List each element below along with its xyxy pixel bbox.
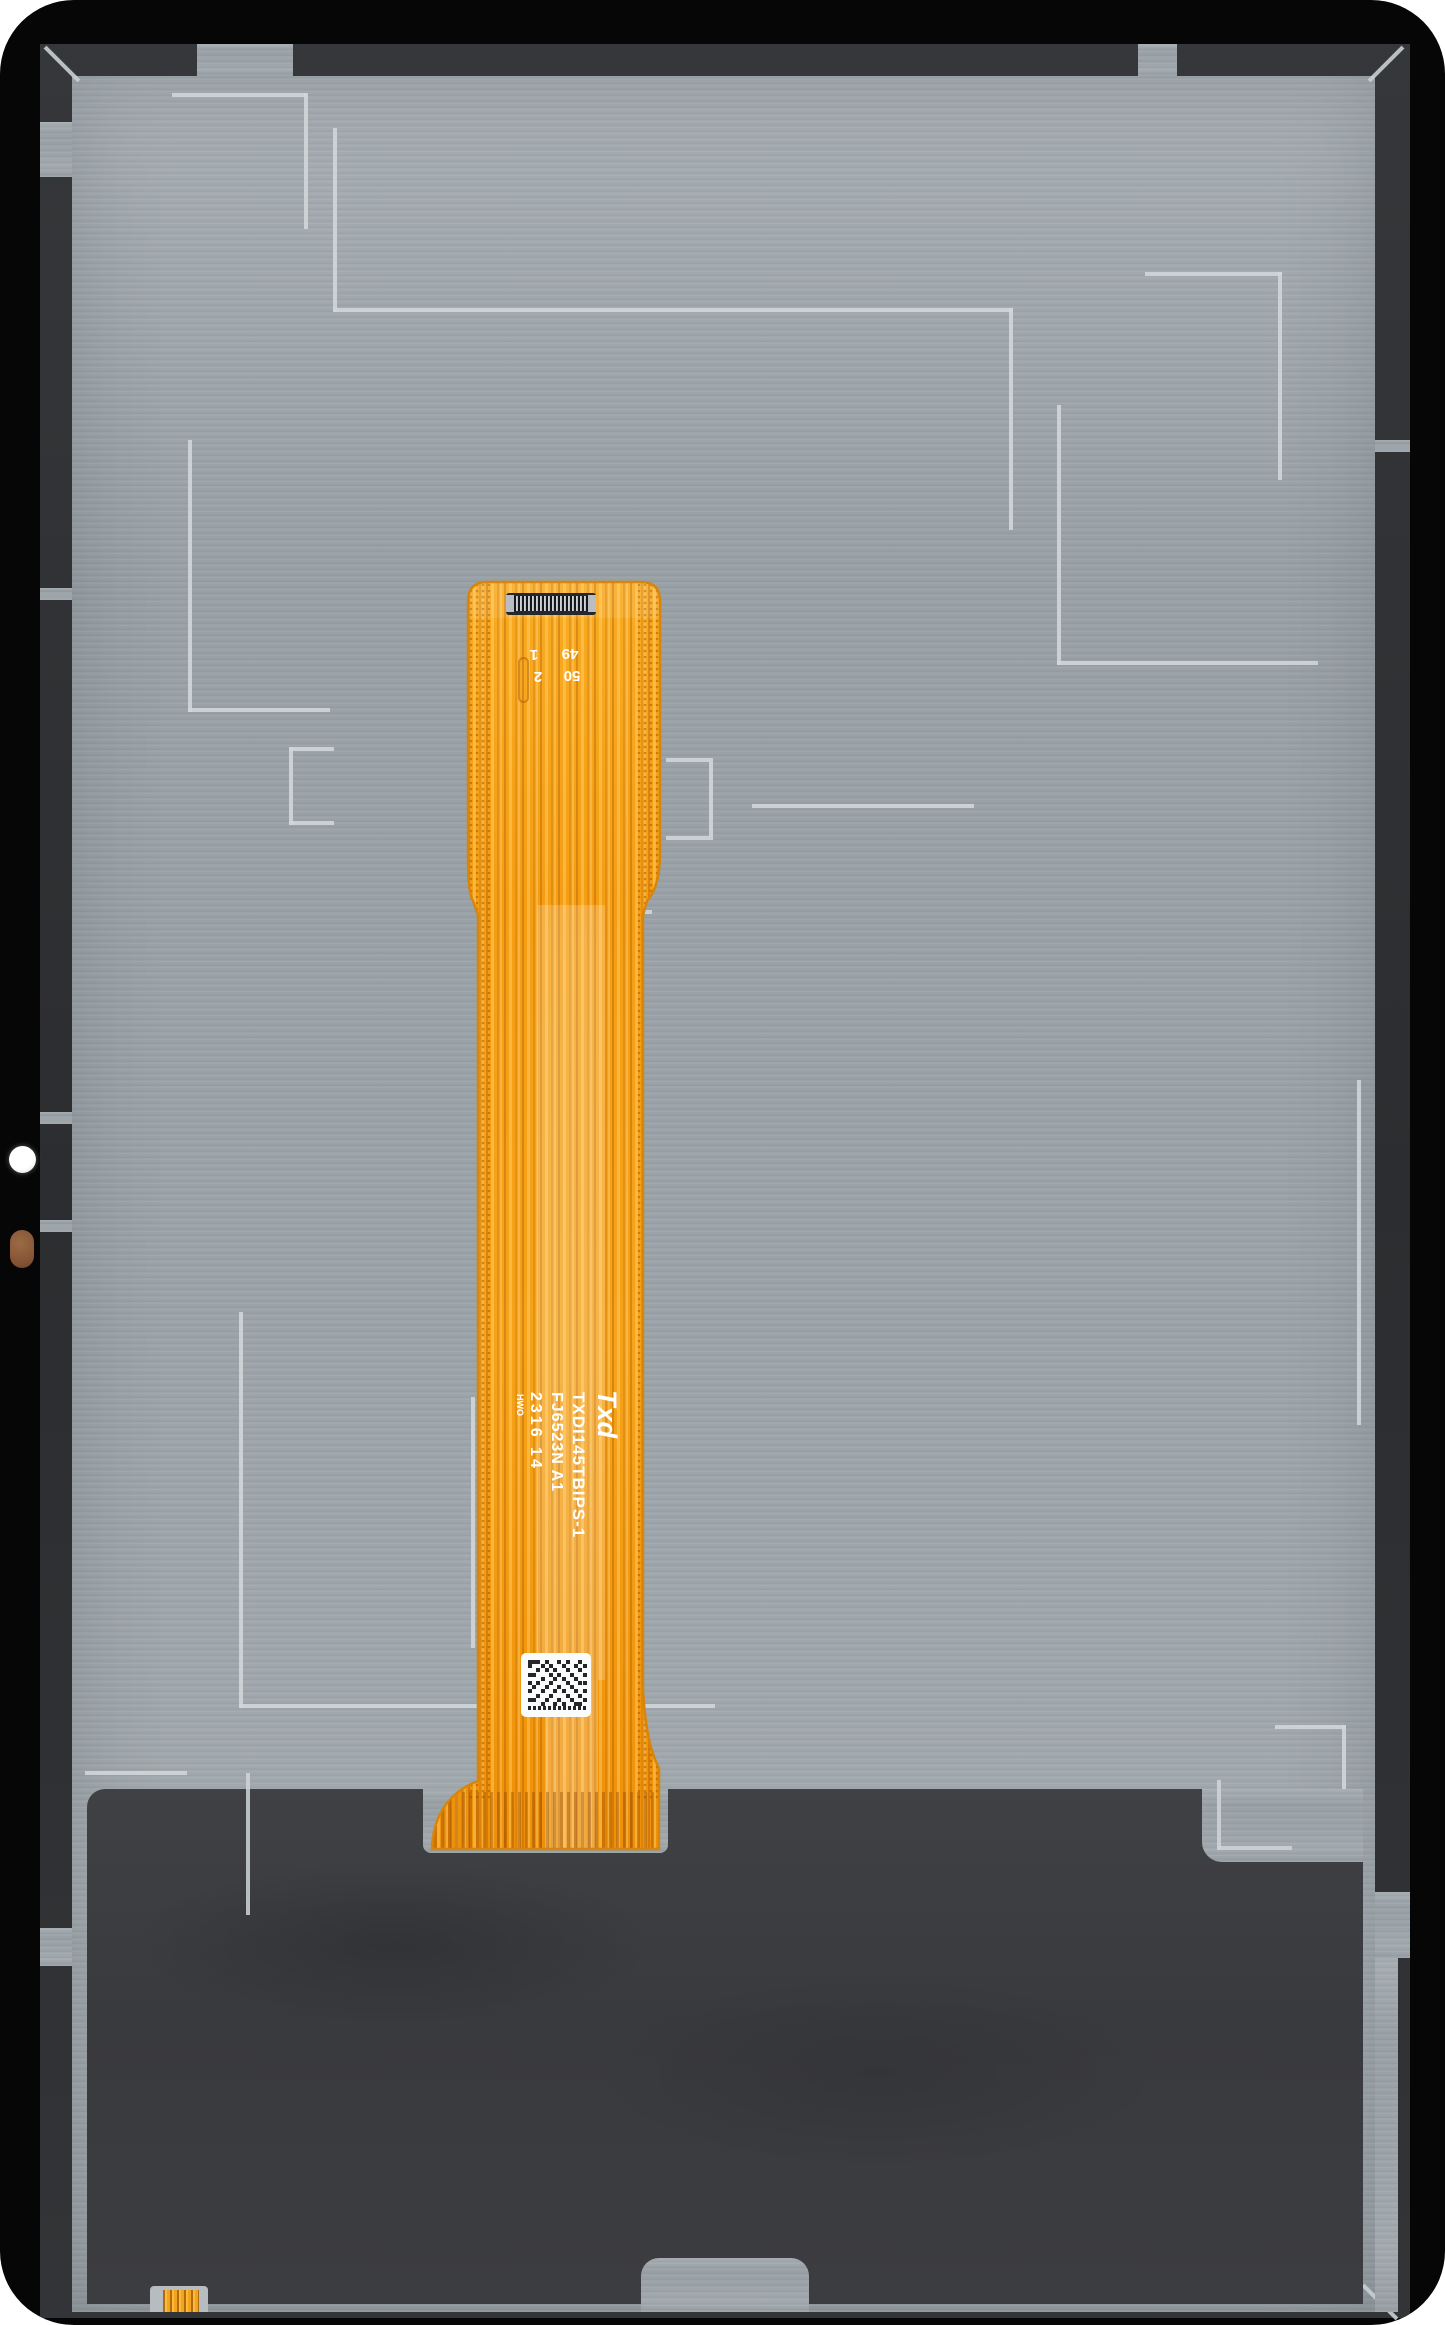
antenna-line — [1342, 1725, 1346, 1796]
antenna-line — [709, 758, 713, 840]
antenna-line — [289, 747, 293, 825]
antenna-line — [304, 93, 308, 229]
antenna-line — [1057, 661, 1318, 665]
bezel-gap — [40, 588, 72, 600]
antenna-line — [752, 804, 974, 808]
bezel-gap — [40, 1928, 72, 1966]
factory-mark: HWO — [515, 1394, 525, 1416]
antenna-line — [188, 440, 192, 712]
antenna-line — [239, 1312, 243, 1708]
antenna-line — [1145, 272, 1282, 276]
antenna-line — [333, 308, 1013, 312]
antenna-line — [188, 708, 330, 712]
antenna-line — [1217, 1846, 1292, 1850]
bezel-gap — [1375, 440, 1410, 452]
qr-label — [521, 1653, 591, 1717]
model-number: TXDI145TBIPS-1 — [569, 1392, 588, 1538]
pin-number: 49 — [562, 645, 579, 662]
right-edge-metal-strip — [1375, 1958, 1398, 2312]
pin-number: 50 — [564, 667, 581, 684]
shield-step-cutout — [1202, 1789, 1363, 1862]
brand-logo: Txd — [592, 1390, 622, 1439]
display-assembly: 1 2 49 50 Txd TXDI145TBIPS-1 FJ6523N A1 … — [0, 0, 1445, 2325]
antenna-line — [289, 747, 334, 751]
bottom-shield-cover — [87, 1789, 1363, 2304]
flex-connector — [506, 593, 596, 615]
bottom-antenna-tab — [641, 2258, 809, 2312]
antenna-window-tab — [1138, 44, 1177, 76]
antenna-line — [333, 128, 337, 312]
pin-number: 1 — [530, 646, 538, 663]
antenna-line — [1217, 1780, 1221, 1850]
antenna-line — [172, 93, 307, 97]
mini-flex-tail — [163, 2290, 199, 2312]
antenna-line — [1009, 308, 1013, 530]
antenna-line — [85, 1771, 187, 1775]
copper-contact-pad — [10, 1230, 34, 1268]
antenna-line — [1275, 1725, 1346, 1729]
antenna-line — [1057, 405, 1061, 665]
bezel-gap — [40, 1112, 72, 1124]
bezel-gap — [40, 1220, 72, 1232]
pin-number: 2 — [534, 668, 542, 685]
part-number: FJ6523N A1 — [548, 1392, 565, 1492]
antenna-line — [246, 1773, 250, 1915]
main-flex-cable: 1 2 49 50 Txd TXDI145TBIPS-1 FJ6523N A1 … — [420, 550, 680, 1862]
bezel-gap — [1375, 1892, 1410, 1958]
antenna-line — [1278, 272, 1282, 480]
antenna-line — [289, 821, 334, 825]
antenna-window-tab — [197, 44, 293, 76]
camera-hole — [9, 1146, 36, 1173]
bezel-gap — [40, 122, 72, 177]
antenna-line — [1357, 1080, 1361, 1425]
product-photo: 1 2 49 50 Txd TXDI145TBIPS-1 FJ6523N A1 … — [0, 0, 1445, 2325]
date-code: 2316 14 — [527, 1392, 544, 1471]
